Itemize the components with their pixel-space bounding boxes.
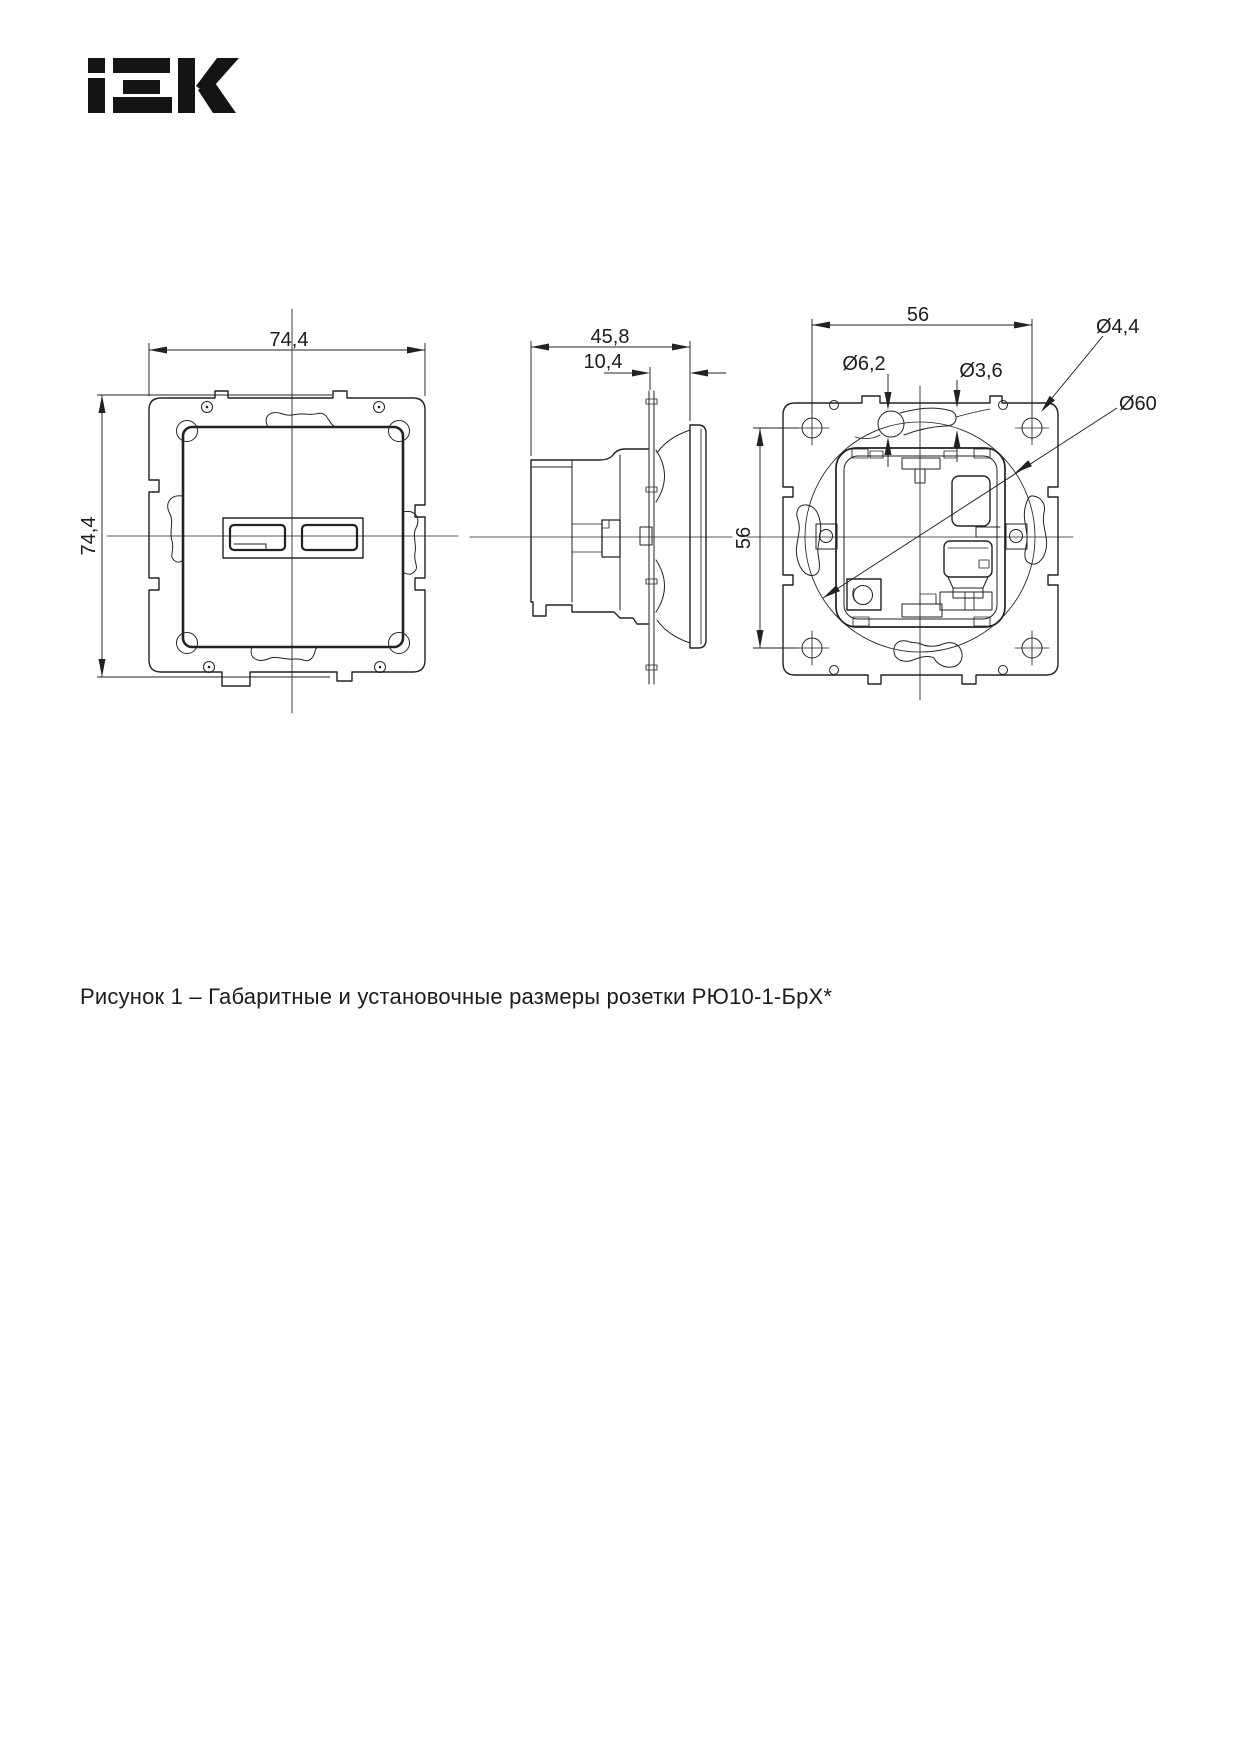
wire-clamp bbox=[902, 458, 940, 469]
keyhole-slot bbox=[855, 408, 990, 439]
usb-ports bbox=[223, 518, 363, 558]
side-view-drawing: 45,8 10,4 bbox=[470, 326, 732, 684]
front-plaster-cutouts bbox=[168, 413, 418, 661]
keyhole-dia-label: Ø6,2 bbox=[842, 353, 885, 375]
usb-port-left bbox=[230, 525, 285, 550]
back-view-drawing: 56 56 Ø6,2 Ø3,6 Ø4,4 Ø60 bbox=[733, 304, 1157, 700]
bottom-terminals bbox=[902, 592, 992, 617]
front-height-label: 74,4 bbox=[78, 517, 100, 556]
usb-port-right bbox=[302, 525, 357, 550]
side-claw-detail bbox=[572, 520, 652, 557]
clamp-screw bbox=[847, 579, 881, 610]
back-dimensions: 56 56 Ø6,2 Ø3,6 Ø4,4 Ø60 bbox=[733, 304, 1157, 648]
front-center-lines bbox=[107, 309, 458, 713]
screw-hole-dia-label: Ø4,4 bbox=[1096, 316, 1139, 338]
back-mechanism-body bbox=[836, 448, 1005, 627]
side-box-inner-lines bbox=[531, 455, 620, 610]
back-plaster-slots bbox=[796, 496, 1046, 667]
side-mounting-plate bbox=[646, 391, 665, 684]
front-width-label: 74,4 bbox=[270, 329, 309, 351]
side-front-depth-label: 10,4 bbox=[584, 351, 623, 373]
side-depth-label: 45,8 bbox=[591, 326, 630, 348]
install-dia-label: Ø60 bbox=[1119, 393, 1157, 415]
front-dimensions: 74,4 74,4 bbox=[78, 329, 425, 677]
figure-caption: Рисунок 1 – Габаритные и установочные ра… bbox=[80, 984, 1180, 1010]
front-mounting-plate bbox=[149, 391, 425, 686]
hole-spacing-h-label: 56 bbox=[907, 304, 929, 326]
usb-module-footprint bbox=[944, 541, 992, 598]
side-mechanism-box bbox=[531, 449, 648, 624]
side-dimensions: 45,8 10,4 bbox=[531, 326, 726, 456]
front-corner-holes bbox=[177, 421, 410, 654]
back-mounting-plate bbox=[783, 396, 1058, 684]
front-view-drawing: 74,4 74,4 bbox=[78, 309, 458, 713]
front-faceplate bbox=[183, 427, 403, 647]
hole-spacing-v-label: 56 bbox=[733, 527, 755, 549]
dimension-drawing: 74,4 74,4 bbox=[0, 0, 1244, 1748]
side-frame bbox=[657, 425, 706, 648]
slot-dia-label: Ø3,6 bbox=[959, 360, 1002, 382]
document-page: IEK bbox=[0, 0, 1244, 1748]
terminal-window bbox=[952, 476, 990, 526]
